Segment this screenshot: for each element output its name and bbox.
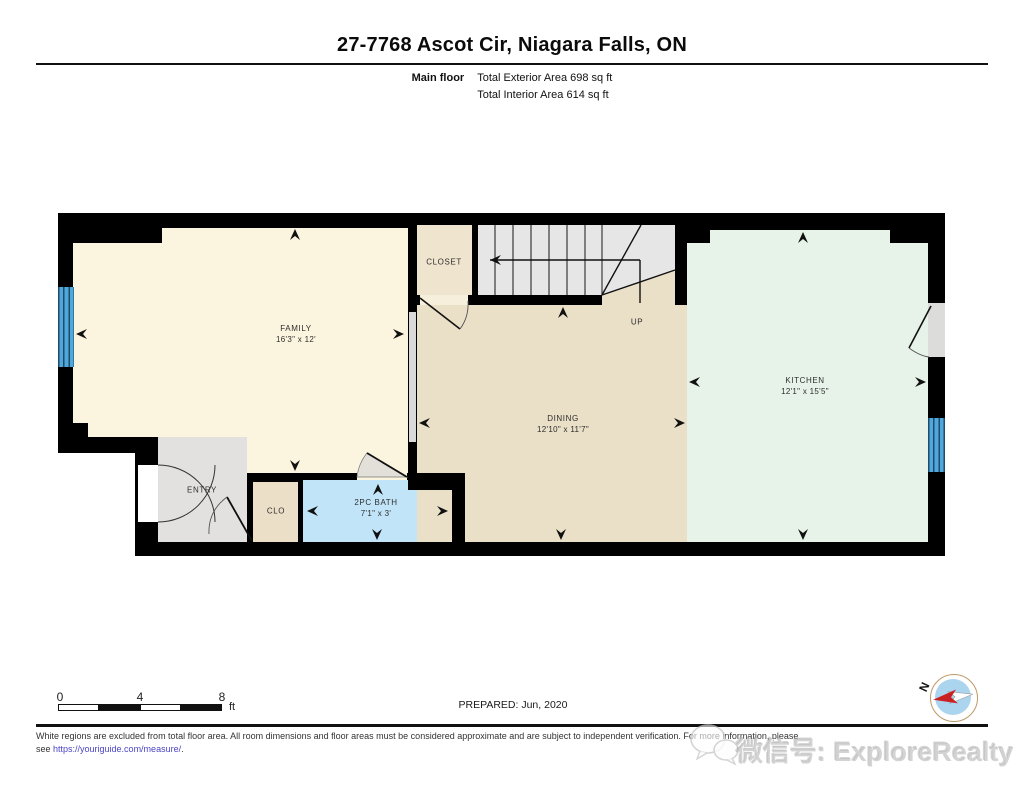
scale-seg-black bbox=[181, 704, 222, 711]
room-label-family: FAMILY 16'3" x 12' bbox=[276, 323, 316, 345]
exterior-notch bbox=[58, 453, 135, 556]
scale-tick-4: 4 bbox=[134, 690, 146, 704]
scale-tick-8: 8 bbox=[216, 690, 228, 704]
kitchen-door-leaf bbox=[928, 303, 945, 357]
scale-seg-white bbox=[58, 704, 99, 711]
floor-label: Main floor bbox=[412, 70, 465, 104]
room-label-up: UP bbox=[631, 317, 643, 328]
exterior-area: Total Exterior Area 698 sq ft bbox=[477, 70, 612, 87]
floorplan-canvas: FAMILY 16'3" x 12' CLOSET UP DINING 12'1… bbox=[58, 213, 945, 556]
window-right bbox=[928, 418, 945, 472]
window-left bbox=[58, 287, 74, 367]
interior-area: Total Interior Area 614 sq ft bbox=[477, 87, 612, 104]
scale-seg-black bbox=[99, 704, 140, 711]
room-label-kitchen: KITCHEN 12'1" x 15'5" bbox=[781, 375, 829, 397]
disclaimer-see: see bbox=[36, 744, 53, 754]
floorplan-page: 27-7768 Ascot Cir, Niagara Falls, ON Mai… bbox=[0, 0, 1024, 791]
scale-bar bbox=[58, 704, 222, 711]
disclaimer: White regions are excluded from total fl… bbox=[36, 730, 986, 755]
compass-needle-icon bbox=[927, 671, 979, 723]
scale-seg-white bbox=[140, 704, 181, 711]
header-divider bbox=[36, 63, 988, 65]
prepared-date: PREPARED: Jun, 2020 bbox=[438, 699, 588, 711]
room-label-entry: ENTRY bbox=[187, 485, 217, 496]
closet-door-opening bbox=[420, 295, 468, 305]
room-label-dining: DINING 12'10" x 11'7" bbox=[537, 413, 589, 435]
floor-areas: Total Exterior Area 698 sq ft Total Inte… bbox=[477, 70, 612, 104]
disclaimer-text: White regions are excluded from total fl… bbox=[36, 731, 798, 741]
wall-segment bbox=[452, 473, 465, 542]
bath-door-opening bbox=[357, 473, 407, 480]
disclaimer-period: . bbox=[181, 744, 184, 754]
page-title: 27-7768 Ascot Cir, Niagara Falls, ON bbox=[0, 34, 1024, 57]
floor-info: Main floor Total Exterior Area 698 sq ft… bbox=[0, 70, 1024, 104]
room-label-closet: CLOSET bbox=[426, 257, 462, 268]
family-dining-opening bbox=[409, 312, 416, 442]
room-label-bath: 2PC BATH 7'1" x 3' bbox=[354, 497, 397, 519]
compass: N bbox=[918, 670, 978, 730]
measure-link[interactable]: https://youriguide.com/measure/ bbox=[53, 744, 181, 754]
room-label-clo: CLO bbox=[267, 506, 285, 517]
footer-divider bbox=[36, 724, 988, 727]
scale-tick-0: 0 bbox=[54, 690, 66, 704]
scale-unit-label: ft bbox=[229, 701, 235, 713]
front-door-opening bbox=[138, 465, 158, 522]
